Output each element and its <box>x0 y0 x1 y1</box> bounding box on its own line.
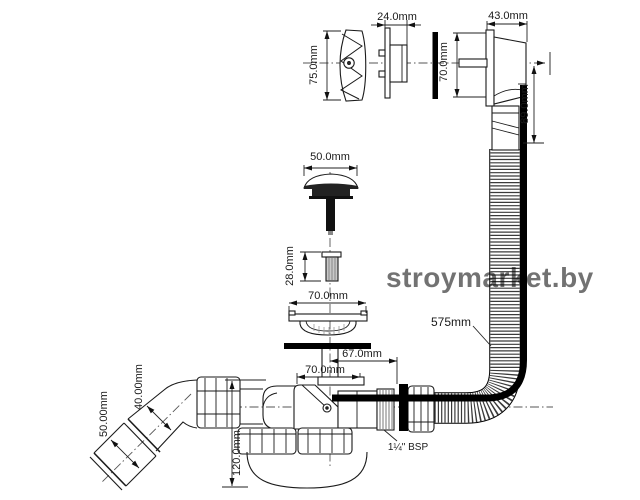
dim-overflow-drop: 89.0mm <box>519 84 531 124</box>
technical-drawing-page: 24.0mm 43.0mm 75.0mm 70.0mm 89.0mm 50.0m… <box>0 0 640 500</box>
trap-bowl <box>247 452 367 488</box>
dim-pipe-end-diameter: 50.00mm <box>98 391 110 437</box>
pipe-end-cap-1 <box>94 453 126 486</box>
overflow-body-flange <box>486 30 494 106</box>
trap-screw-center <box>326 407 328 409</box>
leader-hose-length <box>473 326 491 346</box>
plug-stem-tip <box>328 231 333 235</box>
outlet-nut <box>197 377 240 428</box>
dim-line-pipe <box>147 406 171 430</box>
dim-trap-depth: 120.0mm <box>231 430 243 476</box>
cover-screw-center <box>348 62 351 65</box>
rosette-barrel <box>390 45 407 82</box>
dim-trap-inlet-width: 70.0mm <box>305 364 345 376</box>
thread-size-label: 1¼" BSP <box>388 441 429 453</box>
bath-section-stub <box>399 384 408 431</box>
dim-flange-diameter: 70.0mm <box>308 290 348 302</box>
angled-pipe-bottom <box>156 422 197 451</box>
dim-body-width: 43.0mm <box>488 10 528 22</box>
strainer-bowl <box>300 321 356 335</box>
insert-washer <box>322 252 341 257</box>
technical-drawing-canvas: 24.0mm 43.0mm 75.0mm 70.0mm 89.0mm 50.0m… <box>0 0 640 500</box>
rosette-flange <box>385 28 390 98</box>
trap-elbow-inner <box>263 393 277 407</box>
strainer-slots <box>314 324 344 334</box>
strainer-plate <box>289 314 367 321</box>
overflow-assembly <box>340 28 526 150</box>
strainer-tab-left <box>289 311 295 315</box>
wide-pipe-bottom <box>126 456 156 486</box>
dim-plug-diameter: 50.0mm <box>310 151 350 163</box>
plug-washer <box>309 196 353 199</box>
dim-pipe-diameter: 40.00mm <box>133 364 145 410</box>
waste-top-flange <box>318 377 364 385</box>
pipe-collar-1 <box>128 419 160 452</box>
trap-elbow-housing <box>263 386 296 429</box>
dim-waste-offset: 67.0mm <box>342 348 382 360</box>
dim-line-pipe-end <box>111 440 139 468</box>
dim-rosette-width: 24.0mm <box>377 11 417 23</box>
trap-nut-left <box>238 428 296 454</box>
strainer-bowl-inner <box>306 321 350 331</box>
dim-insert-height: 28.0mm <box>284 246 296 286</box>
plug-stem <box>326 199 335 231</box>
leader-thread <box>384 430 397 441</box>
pipe-end-cap-2 <box>90 457 122 490</box>
dim-body-height: 70.0mm <box>438 42 450 82</box>
rosette-hook-bottom <box>379 71 385 77</box>
overflow-screw-rod <box>459 59 487 67</box>
watermark-text: stroymarket.by <box>386 262 594 293</box>
dim-cover-height: 75.0mm <box>308 45 320 85</box>
plug-seal <box>312 189 350 196</box>
pipe-collar-2 <box>124 423 156 456</box>
hose-length-label: 575mm <box>431 315 471 329</box>
rosette-hook-top <box>379 50 385 56</box>
